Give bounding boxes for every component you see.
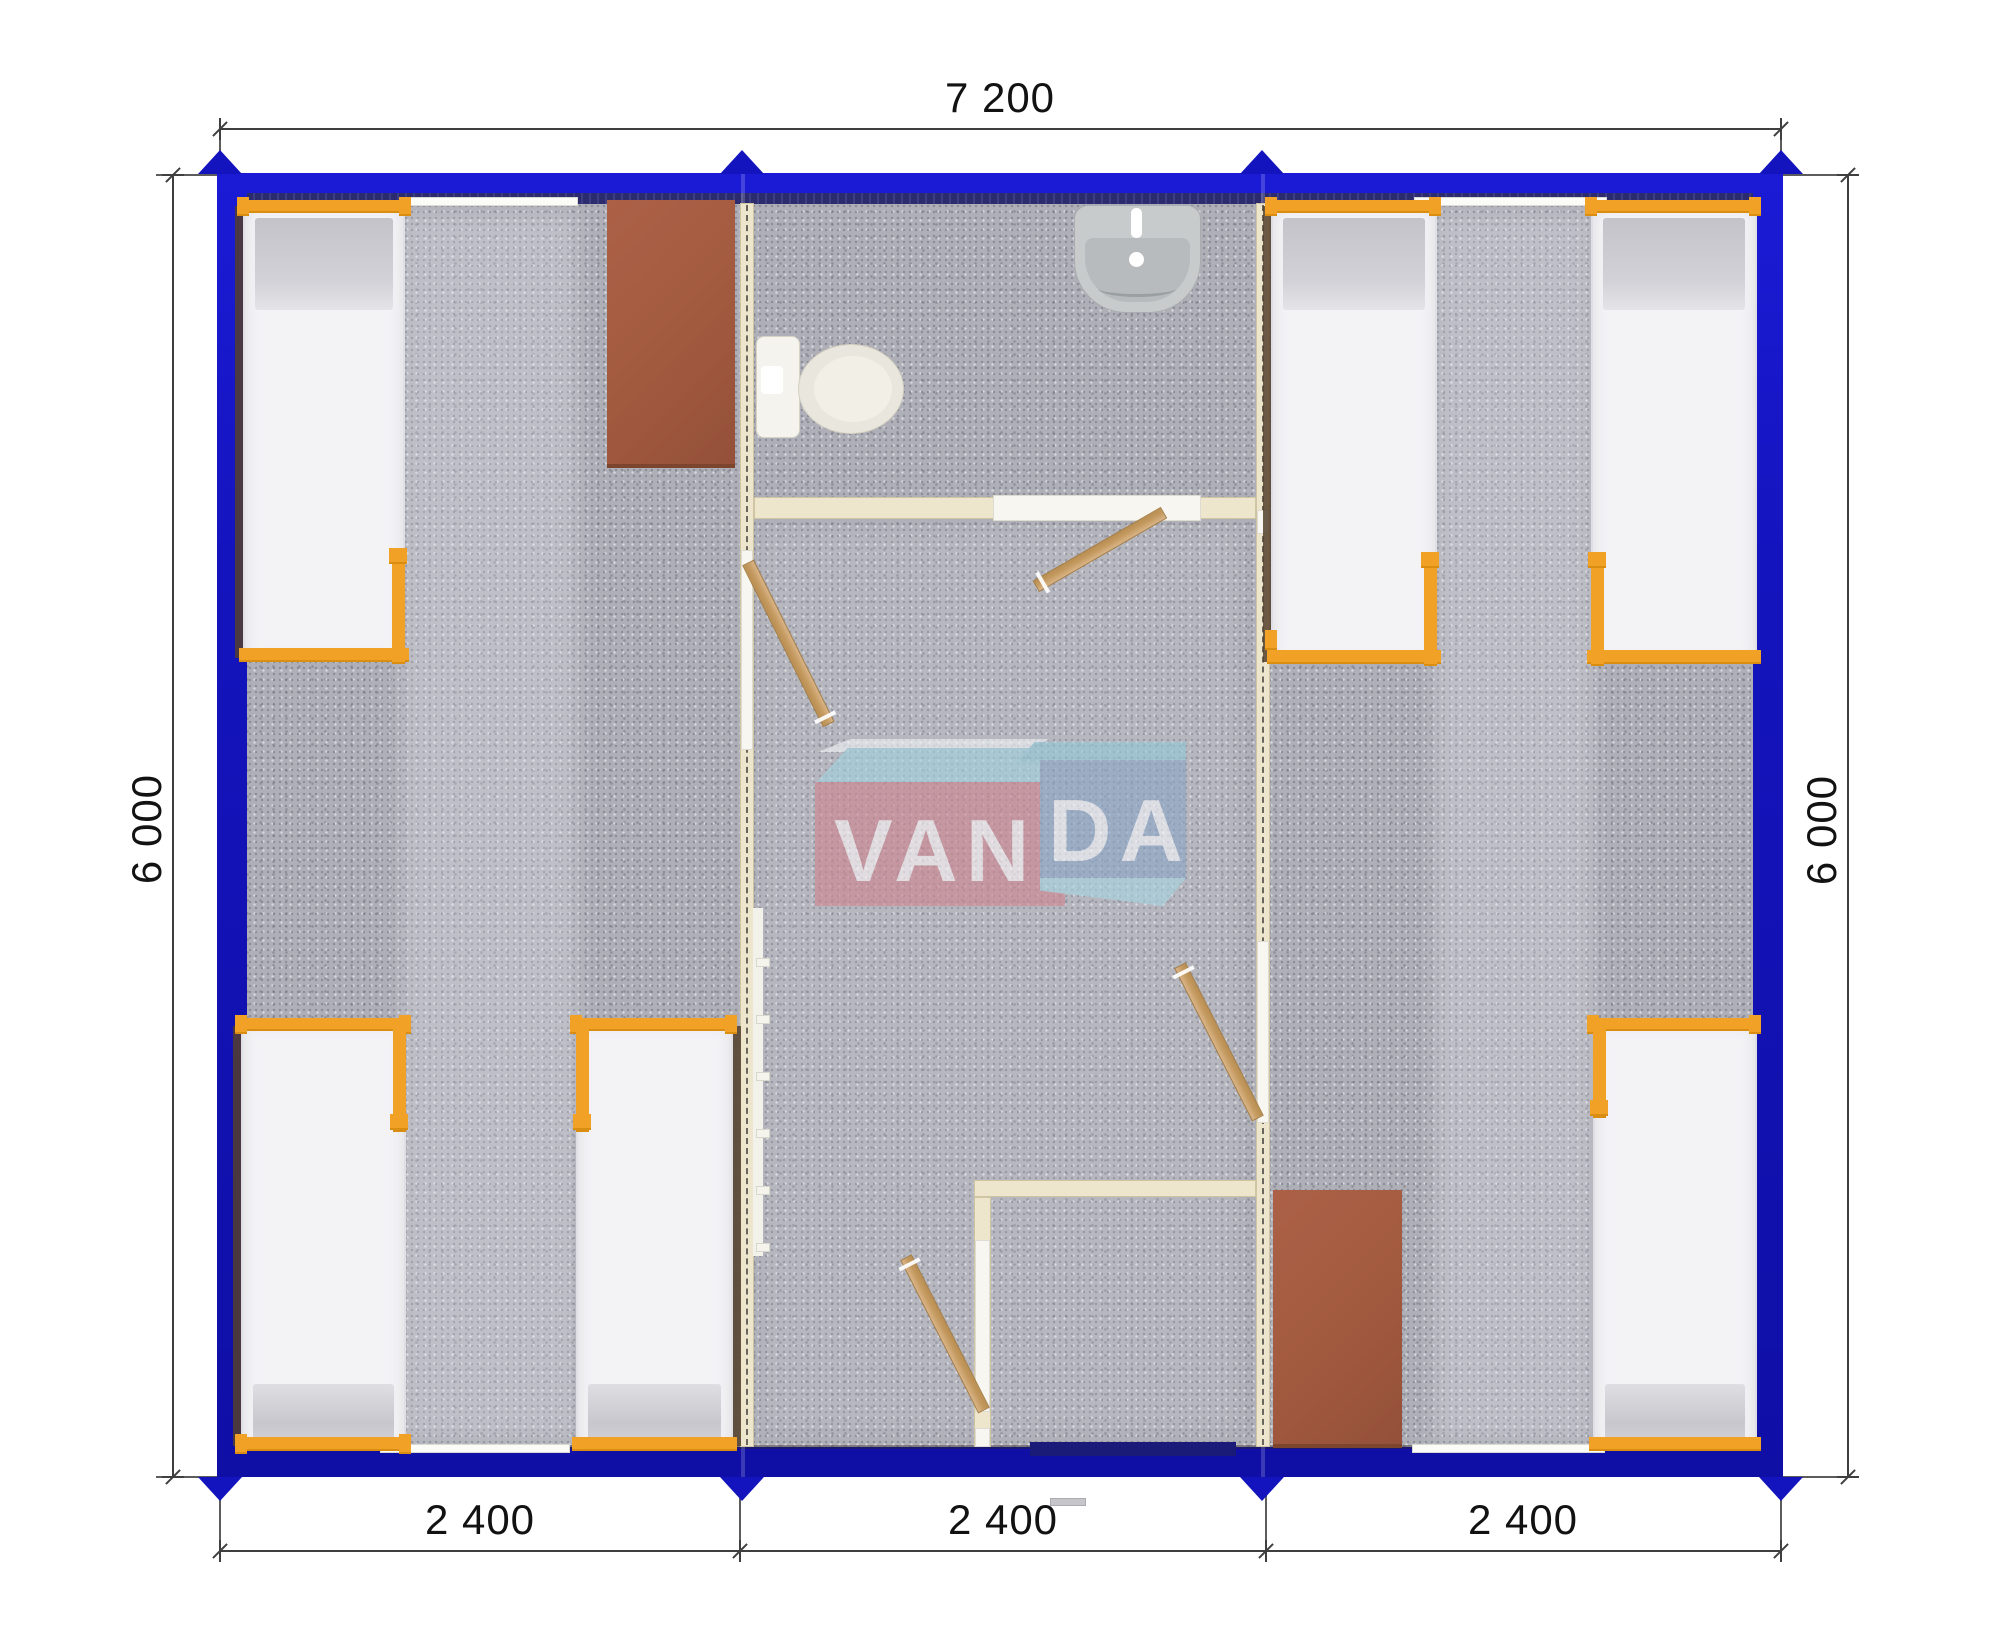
module-joint-seam <box>741 1447 745 1477</box>
dimension-label-bottom-3: 2 400 <box>1413 1496 1633 1544</box>
bed-5-rail-post <box>573 1114 591 1130</box>
partition-centerline <box>746 205 748 1445</box>
logo-text-van: VAN <box>834 800 1037 902</box>
window-sill <box>1412 1444 1605 1453</box>
dimension-line-bottom <box>220 1550 1781 1552</box>
logo-blue-box-top <box>1008 742 1186 762</box>
toilet-flush-button <box>761 366 783 394</box>
bed-3-rail <box>1591 556 1604 666</box>
floor-aisle-left <box>402 212 578 1440</box>
bed-3-corner <box>1585 197 1597 216</box>
bed-2-corner <box>1429 197 1441 216</box>
bed-4-footboard <box>237 1437 410 1451</box>
wall-joint-arrow <box>198 150 242 174</box>
bed-4-corner <box>235 1434 247 1454</box>
bed-4-headboard <box>237 1018 410 1031</box>
bed-4-corner <box>399 1434 411 1454</box>
desk-bottom-right <box>1273 1190 1402 1448</box>
coat-hook <box>756 1243 770 1252</box>
bed-3-headboard <box>1587 200 1761 213</box>
door-lintel-right-room <box>1257 941 1269 1123</box>
sink-overflow <box>1098 280 1176 297</box>
bed-6-corner <box>1749 1015 1761 1034</box>
coat-hook <box>756 1072 770 1081</box>
wall-joint-arrow <box>720 150 764 174</box>
bed-2-corner <box>1265 630 1277 650</box>
bed-2-rail <box>1424 556 1437 666</box>
bed-6-footboard <box>1589 1437 1761 1451</box>
bed-6-rail-post <box>1590 1100 1608 1116</box>
bed-shadow <box>1263 206 1271 662</box>
bed-3-corner <box>1749 197 1761 216</box>
dimension-line-left <box>172 175 174 1477</box>
wall-joint-arrow <box>1240 150 1284 174</box>
wall-joint-arrow <box>1759 150 1803 174</box>
dimension-label-left: 6 000 <box>123 719 171 939</box>
bed-1-rail <box>392 552 405 664</box>
bed-4-pillow <box>253 1384 394 1442</box>
module-joint-seam <box>741 173 745 203</box>
floor-hall <box>762 530 1240 1430</box>
partition-left <box>740 203 754 1447</box>
bed-shadow <box>733 1026 741 1446</box>
bed-shadow <box>235 206 243 658</box>
dimension-label-right: 6 000 <box>1798 720 1846 940</box>
toilet-seat <box>814 356 892 422</box>
desk-top-left <box>607 200 735 468</box>
sink-drain <box>1129 252 1144 267</box>
vestibule-wall-north <box>974 1180 1256 1197</box>
bed-5-pillow <box>588 1384 721 1442</box>
wall-joint-arrow <box>720 1477 764 1501</box>
dimension-label-top: 7 200 <box>890 74 1110 122</box>
coat-hook <box>756 1186 770 1195</box>
bed-5-footboard <box>572 1437 737 1451</box>
window-sill <box>402 197 578 206</box>
bed-5-headboard <box>572 1018 737 1031</box>
entrance-door <box>1030 1442 1236 1456</box>
door-lintel-bathroom <box>993 495 1201 521</box>
door-handle <box>898 1257 920 1271</box>
bed-6-headboard <box>1589 1018 1761 1031</box>
coat-hook <box>756 1015 770 1024</box>
bed-3-pillow <box>1603 218 1745 310</box>
dimension-label-bottom-1: 2 400 <box>370 1496 590 1544</box>
coat-hook <box>756 1129 770 1138</box>
bed-shadow <box>233 1026 241 1446</box>
window-sill <box>1414 197 1607 206</box>
bed-6-pillow <box>1605 1384 1745 1442</box>
coat-hook <box>756 958 770 967</box>
bed-1-corner <box>237 197 249 216</box>
bed-2-pillow <box>1283 218 1425 310</box>
bed-3-rail-post <box>1588 552 1606 568</box>
logo-text-da: DA <box>1048 780 1191 882</box>
wall-joint-arrow <box>198 1477 242 1501</box>
bed-4-rail-post <box>390 1114 408 1130</box>
floor-aisle-right <box>1434 212 1594 1440</box>
bed-5-corner <box>725 1015 737 1034</box>
bed-2-footboard <box>1267 650 1441 664</box>
wall-junction-notch <box>975 1428 990 1447</box>
bed-2-corner <box>1265 197 1277 216</box>
bed-4-corner <box>235 1015 247 1034</box>
bed-1-footboard <box>239 648 409 662</box>
wall-joint-arrow <box>1759 1477 1803 1501</box>
entrance-step <box>1050 1498 1086 1506</box>
bed-1-pillow <box>255 218 393 310</box>
bed-3-footboard <box>1587 650 1761 664</box>
bed-1-rail-post <box>389 548 407 564</box>
module-joint-seam <box>1261 1447 1265 1477</box>
dimension-line-right <box>1847 175 1849 1477</box>
bed-2-headboard <box>1267 200 1441 213</box>
floorplan-canvas: 7 200 2 400 2 400 2 400 6 000 6 000 <box>0 0 2000 1648</box>
wall-joint-arrow <box>1240 1477 1284 1501</box>
bed-1-headboard <box>239 200 409 213</box>
sink-faucet <box>1131 208 1142 238</box>
bed-2-rail-post <box>1421 552 1439 568</box>
dimension-line-top <box>220 128 1781 130</box>
bed-1-corner <box>399 197 411 216</box>
